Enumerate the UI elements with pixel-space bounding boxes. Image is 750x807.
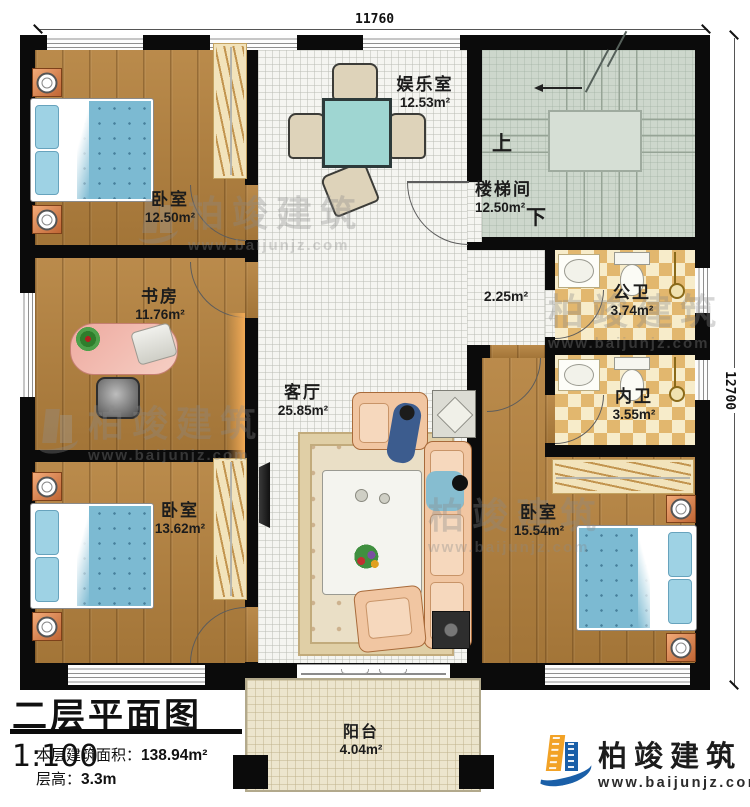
- sink-bowl: [564, 259, 594, 283]
- floor-height-row: 层高：3.3m: [36, 768, 116, 789]
- stairs-up-label: 上: [488, 133, 518, 156]
- company-logo: 柏竣建筑 www.baijunjz.com: [534, 733, 750, 791]
- window-bedroom-bottomright: [545, 665, 690, 685]
- nightstand: [32, 612, 62, 641]
- bed-bottomright: [576, 525, 697, 631]
- person-sitting: [426, 471, 464, 511]
- pillow: [668, 579, 692, 624]
- door-gap-bedroom-topleft: [245, 185, 258, 240]
- floor-area-value: 138.94m²: [141, 747, 207, 764]
- floorplan-page: { "dimensions": { "top": "11760", "right…: [0, 0, 750, 807]
- window-bath-private: [695, 360, 710, 400]
- bed-bottomleft: [30, 503, 154, 609]
- table-item: [355, 489, 368, 502]
- balcony-post: [459, 755, 494, 789]
- lamp-icon: [37, 476, 58, 497]
- stairs-upper-flight: [550, 50, 642, 110]
- window-bedroom-topleft: [47, 35, 143, 50]
- sheet-fold: [59, 506, 89, 606]
- sliding-door-handle-left: [341, 669, 369, 674]
- pillow: [35, 557, 59, 602]
- shower-icon: [674, 252, 676, 284]
- window-bath-public: [695, 268, 710, 313]
- room-label-bath-public: 公卫 3.74m²: [590, 283, 674, 318]
- door-gap-bath-private: [545, 395, 555, 443]
- wardrobe-rod: [556, 477, 690, 479]
- lamp-icon: [37, 72, 58, 93]
- stairs-right-flight: [638, 112, 695, 168]
- right-dimension-line: [734, 38, 735, 686]
- sliding-door-handle-right: [379, 669, 407, 674]
- floorplan-canvas: 卧室 12.50m² 书房 11.76m² 卧室 13.62m² 娱乐室 12.…: [20, 35, 710, 690]
- person-head: [452, 475, 468, 491]
- room-label-entertainment: 娱乐室 12.53m²: [380, 75, 470, 110]
- room-label-study: 书房 11.76m²: [118, 287, 202, 322]
- nightstand: [666, 633, 696, 662]
- stair-landing: [548, 110, 642, 172]
- sheet-fold: [638, 528, 668, 628]
- nightstand: [32, 472, 62, 501]
- wardrobe-topleft: [213, 43, 247, 179]
- door-gap-study: [245, 262, 258, 318]
- desk-chair: [96, 377, 140, 419]
- top-dimension-value: 11760: [352, 12, 397, 27]
- window-bedroom-bottomleft: [68, 665, 205, 685]
- nightstand: [32, 205, 62, 234]
- door-gap-bath-public: [545, 290, 555, 337]
- title-underline: [10, 729, 242, 734]
- pillow: [668, 532, 692, 577]
- room-label-bath-private: 内卫 3.55m²: [592, 387, 676, 422]
- room-label-balcony: 阳台 4.04m²: [318, 724, 404, 758]
- lamp-icon: [671, 637, 692, 658]
- end-table-inlay: [437, 397, 474, 434]
- right-dimension-value: 12700: [722, 368, 737, 413]
- wardrobe-rod: [230, 47, 232, 175]
- corridor-area-label: 2.25m²: [468, 288, 544, 304]
- room-label-stairwell: 楼梯间 12.50m²: [475, 180, 565, 215]
- window-stairwell: [363, 35, 460, 50]
- top-dimension-line: [38, 29, 708, 30]
- stair-arrowhead-icon: [534, 84, 543, 92]
- sliding-door-rail: [301, 673, 446, 675]
- room-label-bedroom-bottomright: 卧室 15.54m²: [494, 503, 584, 538]
- sofa-cushion: [365, 597, 413, 639]
- game-chair-left: [288, 113, 326, 159]
- door-gap-bedroom-bottomright: [490, 345, 545, 358]
- lamp-icon: [37, 209, 58, 230]
- nightstand: [32, 68, 62, 97]
- game-chair-right: [388, 113, 426, 159]
- plant-icon: [74, 325, 102, 353]
- floor-height-label: 层高：: [36, 771, 81, 788]
- door-leaf-stairwell: [407, 181, 469, 183]
- wardrobe-rod: [230, 462, 232, 596]
- company-website: www.baijunjz.com: [598, 775, 750, 791]
- floor-height-value: 3.3m: [81, 771, 116, 788]
- table-item: [379, 493, 390, 504]
- door-gap-bedroom-bottomleft: [245, 607, 258, 662]
- sofa-cushion: [430, 514, 464, 576]
- lamp-icon: [37, 616, 58, 637]
- wardrobe-bottomright: [552, 459, 694, 494]
- armchair: [353, 585, 427, 654]
- nightstand: [666, 495, 696, 523]
- floor-area-label: 本层建筑面积：: [36, 747, 141, 764]
- room-label-bedroom-topleft: 卧室 12.50m²: [128, 190, 212, 225]
- coffee-table: [322, 470, 422, 595]
- company-logo-icon: [534, 733, 592, 791]
- pillow: [35, 105, 59, 149]
- sheet-fold: [59, 101, 89, 199]
- stair-direction-arrow: [540, 87, 582, 89]
- floor-area-row: 本层建筑面积：138.94m²: [36, 744, 207, 765]
- sink-bowl: [564, 364, 594, 386]
- lamp-icon: [671, 499, 692, 520]
- speaker-table: [432, 611, 470, 649]
- sofa-cushion: [359, 403, 389, 443]
- flower-vase-icon: [351, 543, 385, 573]
- window-study: [20, 293, 35, 397]
- end-table: [432, 390, 476, 438]
- room-label-bedroom-bottomleft: 卧室 13.62m²: [138, 501, 222, 536]
- tv-icon: [259, 462, 270, 528]
- bed-topleft: [30, 98, 154, 202]
- bookshelf-glow: [227, 313, 245, 463]
- pillow: [35, 510, 59, 555]
- shower-icon: [674, 357, 676, 387]
- pillow: [35, 151, 59, 195]
- room-label-living: 客厅 25.85m²: [258, 383, 348, 418]
- game-chair-top: [332, 63, 378, 101]
- person-head: [398, 404, 415, 421]
- company-name: 柏竣建筑: [598, 733, 750, 775]
